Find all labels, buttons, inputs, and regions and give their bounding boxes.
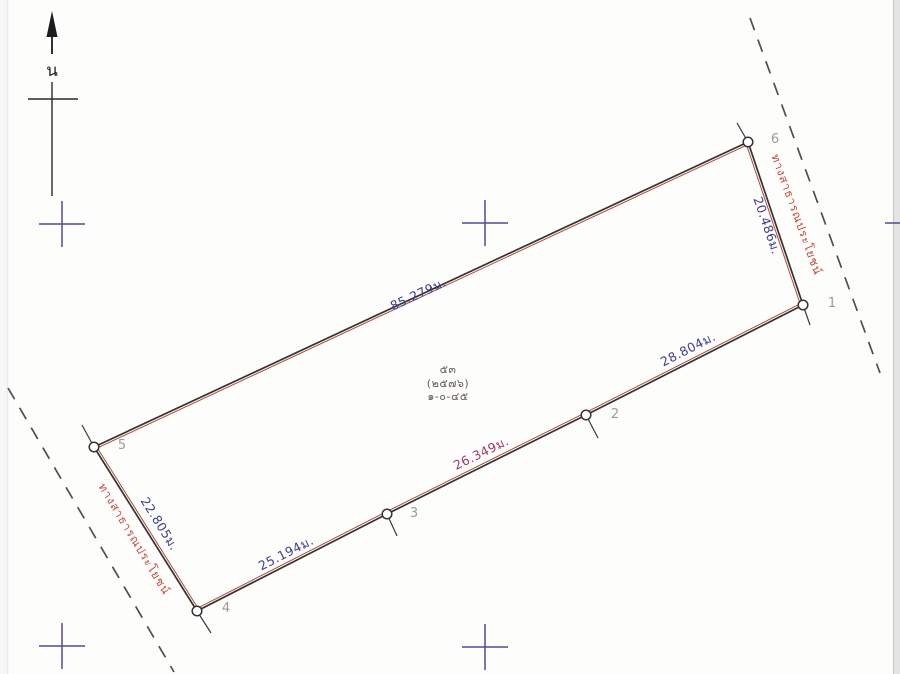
vertex-marker (192, 606, 202, 616)
vertex-number: 5 (118, 438, 126, 453)
vertex-marker (382, 509, 392, 519)
vertex-marker (89, 442, 99, 452)
vertex-marker (798, 300, 808, 310)
survey-number: (๒๕๗๖) (403, 377, 493, 391)
north-label: น (46, 61, 58, 81)
parcel-area: ๑-๐-๔๕ (403, 390, 493, 404)
vertex-number: 6 (771, 132, 779, 147)
sheet-background (0, 0, 900, 674)
vertex-number: 3 (410, 506, 418, 521)
vertex-number: 2 (611, 407, 619, 422)
vertex-number: 4 (222, 601, 230, 616)
survey-map: นทางสาธารณประโยชน์ทางสาธารณประโยชน์85.27… (0, 0, 900, 674)
vertex-number: 1 (828, 296, 836, 311)
parcel-info-block: ๕๓ (๒๕๗๖) ๑-๐-๔๕ (403, 363, 493, 404)
page-edge-left-strip (0, 0, 7, 674)
vertex-marker (743, 137, 753, 147)
vertex-marker (581, 410, 591, 420)
parcel-number: ๕๓ (403, 363, 493, 377)
page-edge-right-strip (894, 0, 900, 674)
survey-sheet: นทางสาธารณประโยชน์ทางสาธารณประโยชน์85.27… (0, 0, 900, 674)
